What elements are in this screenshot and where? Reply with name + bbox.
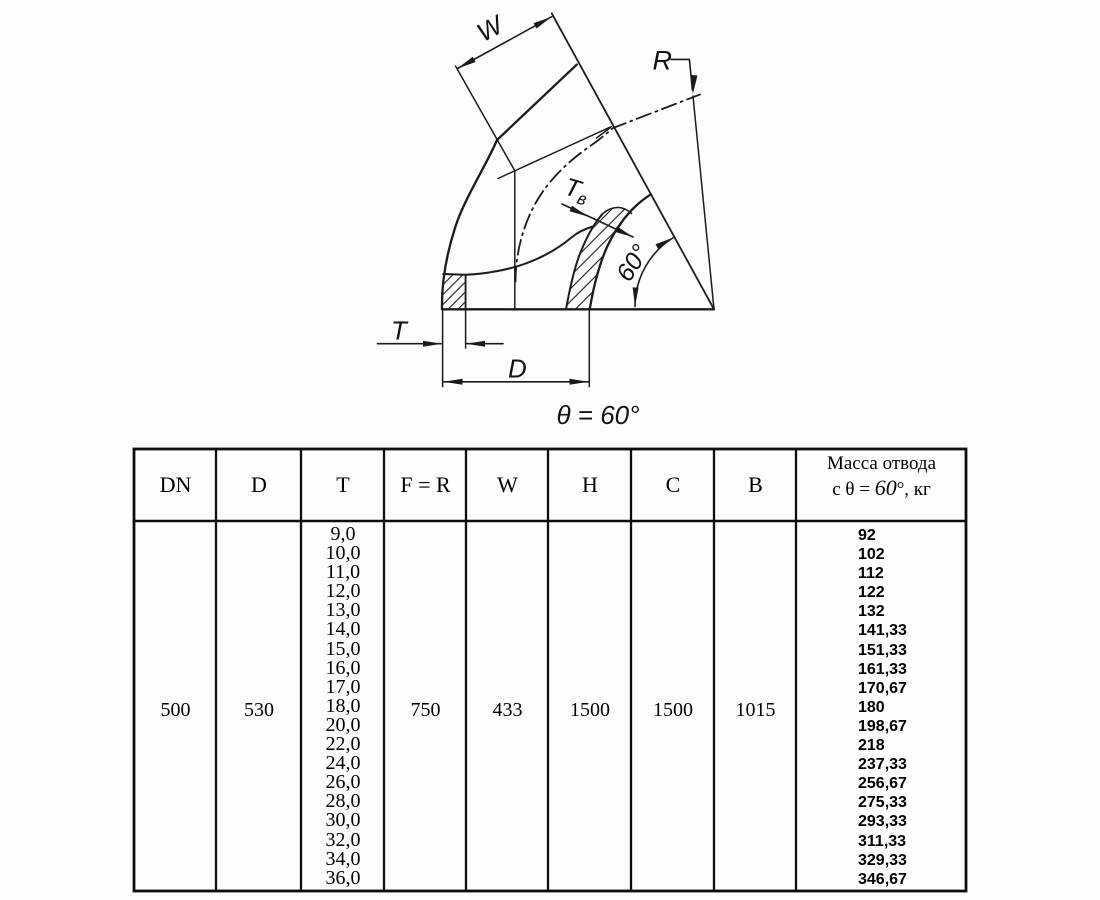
svg-text:R: R <box>653 46 673 76</box>
svg-text:θ = 60°: θ = 60° <box>556 400 639 430</box>
svg-text:D: D <box>508 354 527 384</box>
svg-text:W: W <box>472 8 510 47</box>
svg-text:60°: 60° <box>611 240 655 287</box>
svg-text:Tв: Tв <box>561 173 593 209</box>
svg-text:T: T <box>391 316 409 346</box>
